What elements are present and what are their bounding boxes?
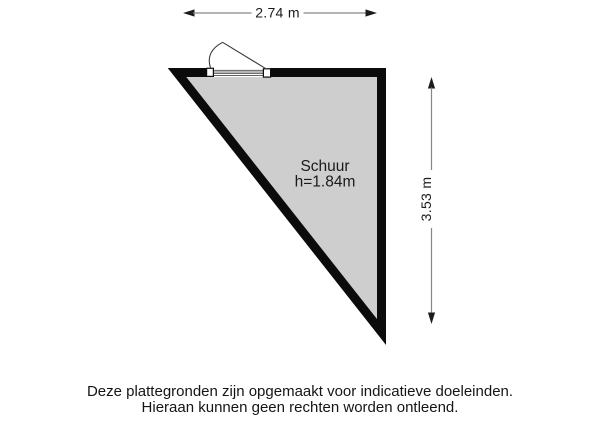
- door-swing-arc: [209, 42, 222, 68]
- dimension-top: 2.74 m: [183, 5, 377, 21]
- door-jamb-left: [207, 68, 214, 76]
- disclaimer: Deze plattegronden zijn opgemaakt voor i…: [0, 384, 600, 415]
- floorplan-page: 2.74 m Schuur h=1.84m 3.53 m: [0, 0, 600, 424]
- floorplan-canvas: 2.74 m Schuur h=1.84m 3.53 m: [0, 0, 600, 424]
- disclaimer-line-2: Hieraan kunnen geen rechten worden ontle…: [0, 400, 600, 416]
- dimension-arrow-up-icon: [428, 77, 435, 89]
- room-name-label: Schuur: [300, 158, 349, 175]
- door-leaf: [223, 42, 267, 69]
- dimension-arrow-right-icon: [366, 9, 378, 16]
- room-height-label: h=1.84m: [295, 174, 356, 191]
- top-dimension-label: 2.74 m: [255, 5, 300, 21]
- door-jamb-right: [263, 69, 270, 77]
- disclaimer-line-1: Deze plattegronden zijn opgemaakt voor i…: [0, 384, 600, 400]
- dimension-right: 3.53 m: [418, 77, 435, 324]
- right-dimension-label: 3.53 m: [418, 177, 434, 222]
- room-schuur: Schuur h=1.84m: [177, 42, 382, 332]
- dimension-arrow-left-icon: [183, 9, 195, 16]
- room-outline: [177, 73, 382, 333]
- dimension-arrow-down-icon: [428, 313, 435, 325]
- door-threshold: [214, 70, 264, 75]
